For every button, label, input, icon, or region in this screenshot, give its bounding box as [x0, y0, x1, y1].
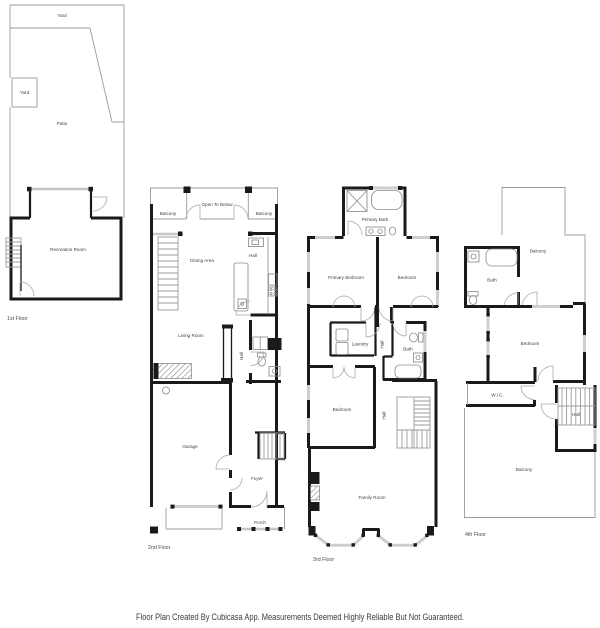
door-arc-icon — [521, 386, 535, 400]
room-label-wic: W.I.C. — [491, 393, 504, 398]
bathtub-icon — [372, 191, 403, 210]
room-label-bath4: Bath — [487, 278, 497, 283]
footer-disclaimer: Floor Plan Created By Cubicasa App. Meas… — [136, 612, 464, 622]
room-label-balcony-top: Balcony — [530, 249, 547, 254]
floor-plan-page: Yard Yard Patio Recreation Room 1st Floo… — [0, 0, 600, 628]
room-label-hall4: Hall — [572, 412, 580, 417]
sink-icon — [252, 240, 259, 245]
door-arc-icon — [186, 205, 248, 219]
floor-caption-2nd: 2nd Floor — [148, 545, 171, 551]
family-room-walls — [310, 448, 320, 527]
room-label-yard-top: Yard — [57, 13, 67, 18]
room-label-bedroom-lower: Bedroom — [333, 407, 352, 412]
room-label-yard-side: Yard — [20, 90, 30, 95]
hall4-stairs — [541, 385, 596, 452]
toilet-icon — [419, 333, 424, 342]
room-label-primary-bath: Primary Bath — [362, 217, 389, 222]
door-arc-icon — [541, 404, 556, 419]
main-walls-2nd — [151, 204, 285, 509]
floor-caption-4th: 4th Floor — [465, 532, 486, 538]
room-label-balcony-bottom: Balcony — [516, 467, 533, 472]
room-label-primary-bedroom: Primary Bedroom — [328, 275, 364, 280]
bedroom-lower-walls — [308, 307, 375, 448]
staircase-icon — [6, 238, 21, 291]
washer-icon — [336, 329, 348, 341]
sink-icon — [269, 367, 280, 377]
staircase-icon — [158, 237, 178, 310]
toilet-icon — [258, 353, 267, 357]
room-label-porch: Porch — [254, 520, 266, 525]
bathtub-icon — [395, 365, 421, 378]
floor-plan-1st: Yard Yard Patio Recreation Room 1st Floo… — [6, 5, 124, 322]
room-label-garage: Garage — [182, 444, 198, 449]
room-label-bath: Bath — [403, 347, 413, 352]
toilet-icon — [389, 227, 395, 235]
bay-window — [309, 526, 435, 547]
door-arc-icon — [538, 366, 553, 381]
room-label-living-room: Living Room — [178, 333, 204, 338]
room-label-hall-lower: Hall — [382, 412, 387, 420]
room-label-open-to-below: Open To Below — [201, 202, 233, 207]
dryer-icon — [336, 343, 348, 355]
room-label-hall-mid: Hall — [239, 352, 244, 360]
room-label-family-room: Family Room — [358, 495, 385, 500]
fireplace-icon — [311, 472, 320, 484]
sink-icon — [468, 251, 479, 262]
vanity-icons — [366, 227, 396, 236]
fireplace-icon — [154, 363, 192, 379]
room-label-recreation-room: Recreation Room — [50, 247, 86, 252]
room-label-balcony-right: Balcony — [256, 211, 273, 216]
closet-door-arc-icon — [333, 367, 355, 378]
bedroom-level-walls — [307, 236, 439, 327]
staircase-icon — [260, 433, 284, 459]
room-label-foyer: Foyer — [251, 476, 263, 481]
bath3-walls — [383, 323, 427, 382]
floor-plan-3rd: Primary Bath Primary Bedroom Bedroom Lau… — [307, 186, 439, 563]
floor-caption-1st: 1st Floor — [7, 316, 28, 322]
marker-icon — [163, 387, 170, 394]
closet-door-arc-icon — [333, 296, 433, 321]
floor-plan-canvas: Yard Yard Patio Recreation Room 1st Floo… — [0, 0, 600, 628]
room-label-bedroom-right: Bedroom — [398, 275, 417, 280]
room-label-hall-kitchen: Hall — [249, 253, 257, 258]
room-label-laundry: Laundry — [352, 342, 369, 347]
door-arc-icon — [348, 221, 362, 235]
floor-plan-2nd: Balcony Open To Below Balcony Dining Are… — [148, 187, 285, 552]
sink-icon — [414, 353, 423, 362]
bathtub-icon — [486, 249, 517, 266]
room-label-patio: Patio — [57, 121, 68, 126]
shower-icon — [347, 191, 367, 212]
room-label-bedroom4: Bedroom — [521, 341, 540, 346]
door-arc-icon — [393, 323, 406, 336]
room-label-dining-area: Dining Area — [190, 258, 214, 263]
hall-stairs-walls — [392, 381, 437, 528]
floor-caption-3rd: 3rd Floor — [313, 557, 334, 563]
yard-patio-outline — [10, 5, 124, 218]
floor-plan-4th: Balcony Bath Bedroom W.I.C. Hall Balcony… — [464, 188, 596, 539]
room-label-hall-upper: Hall — [380, 341, 385, 349]
bath4-walls — [464, 246, 520, 307]
room-label-balcony-left: Balcony — [160, 211, 177, 216]
kitchen-counter-icons — [249, 237, 278, 313]
door-arc-icon — [504, 292, 537, 307]
